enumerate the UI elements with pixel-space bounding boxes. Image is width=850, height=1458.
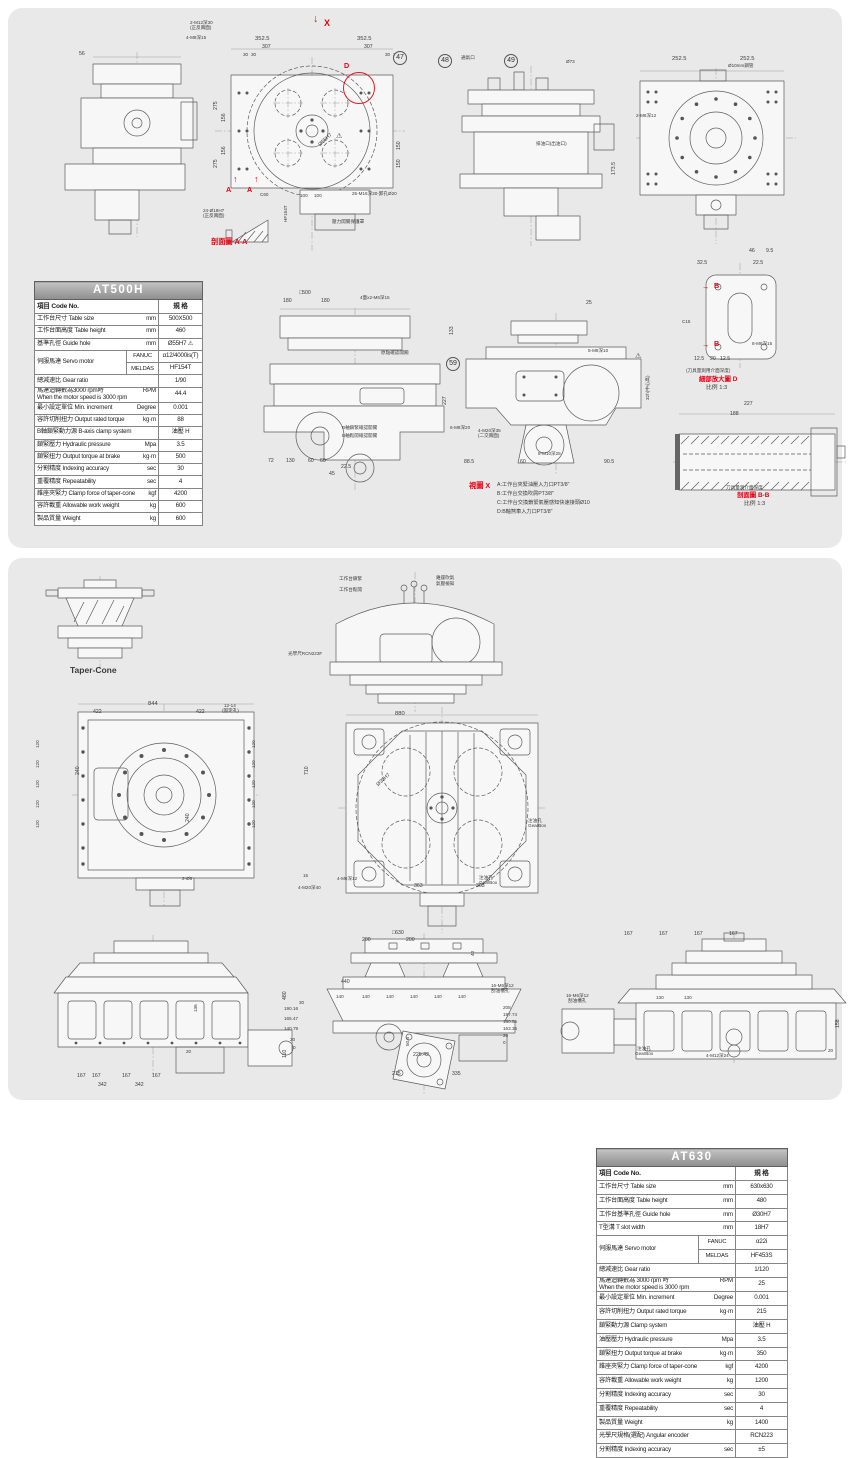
spec-label: 馬達迴轉數為3000 rpm時RPMWhen the motor speed i… [35,387,159,402]
spec-label: 光學尺規格(選配) Angular encoder [597,1430,736,1444]
table-header-row: 項目 Code No.規 格 [597,1167,788,1181]
spec-value: 4 [736,1402,788,1416]
spec-row: 分割精度 Indexing accuracysec±5 [597,1444,788,1458]
spec-row: 總減速比 Gear ratio1/120 [597,1263,788,1277]
motor-brand: FANUC [127,350,159,362]
spec-row: 工作台面高度 Table heightmm480 [597,1194,788,1208]
spec-label: 重覆精度 Repeatabilitysec [597,1402,736,1416]
motor-brand: MELDAS [127,363,159,375]
spec-row: 容許切削扭力 Output rated torquekg·m88 [35,414,203,426]
column-spec-header: 規 格 [159,300,203,314]
spec-label: 分割精度 Indexing accuracysec [597,1389,736,1403]
spec-row: 錐座夾緊力 Clamp force of taper-conekgf4200 [35,488,203,500]
spec-label: 鎖緊壓力 Hydraulic pressureMpa [35,439,159,451]
spec-row: 馬達迴轉數為 3000 rpm 時RPMWhen the motor speed… [597,1277,788,1292]
spec-row: 容許切削扭力 Output rated torquekg·m215 [597,1306,788,1320]
spec-label: 工作台基準孔徑 Guide holemm [597,1208,736,1222]
spec-value: 4 [159,476,203,488]
spec-label: 工作台面高度 Table heightmm [35,326,159,338]
table-title-row: AT630 [597,1149,788,1167]
spec-label: 馬達迴轉數為 3000 rpm 時RPMWhen the motor speed… [597,1277,736,1292]
spec-label: 鎖緊扭力 Output torque at brakekg·m [35,451,159,463]
drawing-side-elevation [456,313,681,478]
spec-row: 鎖緊扭力 Output torque at brakekg·m350 [597,1347,788,1361]
spec-label: 製品質量 Weightkg [35,513,159,525]
spec-value: 480 [736,1194,788,1208]
spec-row: 製品質量 Weightkg600 [35,513,203,525]
spec-label: 工作台尺寸 Table sizemm [35,314,159,326]
spec-row: T型溝 T slot widthmm18H7 [597,1222,788,1236]
spec-label: 總減速比 Gear ratio [597,1263,736,1277]
spec-label: 基準孔徑 Guide holemm [35,338,159,350]
spec-row: 伺服馬達 Servo motorFANUCα22i [597,1236,788,1250]
spec-value: 630x630 [736,1181,788,1195]
spec-row: 工作台尺寸 Table sizemm500X500 [35,314,203,326]
spec-label: 工作台尺寸 Table sizemm [597,1181,736,1195]
spec-label: 錐座夾緊力 Clamp force of taper-conekgf [597,1361,736,1375]
spec-value: α12/4000is(T) [159,350,203,362]
spec-value: 500 [159,451,203,463]
spec-value: HF154T [159,363,203,375]
drawing-front-elevation-center [303,933,553,1105]
spec-row: 重覆精度 Repeatabilitysec4 [35,476,203,488]
spec-row: 光學尺規格(選配) Angular encoderRCN223 [597,1430,788,1444]
spec-row: 容許載重 Allowable work weightkg600 [35,501,203,513]
spec-value: Ø55H7 ⚠ [159,338,203,350]
spec-row: 鎖緊動力源 Clamp system油壓 H [597,1320,788,1334]
bottom-panel-at630: AT630項目 Code No.規 格工作台尺寸 Table sizemm630… [8,558,842,1100]
spec-label: 製品質量 Weightkg [597,1416,736,1430]
spec-row: 鎖緊壓力 Hydraulic pressureMpa3.5 [35,439,203,451]
spec-value: 350 [736,1347,788,1361]
top-panel-at500h: AT500H項目 Code No.規 格工作台尺寸 Table sizemm50… [8,8,842,548]
spec-label: 工作台面高度 Table heightmm [597,1194,736,1208]
spec-row: 最小設定單位 Min. incrementDegree0.001 [35,402,203,414]
drawing-detail-d [686,253,816,371]
spec-row: 分割精度 Indexing accuracysec30 [597,1389,788,1403]
drawing-side-view-pallet [436,66,631,248]
spec-value: 25 [736,1277,788,1292]
spec-row: 基準孔徑 Guide holemmØ55H7 ⚠ [35,338,203,350]
spec-value: 4200 [736,1361,788,1375]
spec-row: 工作台面高度 Table heightmm460 [35,326,203,338]
spec-label: 伺服馬達 Servo motor [597,1236,699,1264]
drawing-side-elevation-right [556,933,850,1105]
spec-label: 最小設定單位 Min. incrementDegree [35,402,159,414]
spec-value: 215 [736,1306,788,1320]
spec-value: 0.001 [159,402,203,414]
spec-value: 1/120 [736,1263,788,1277]
motor-brand: MELDAS [699,1249,736,1263]
drawing-side-elevation-left [36,935,294,1103]
spec-label: T型溝 T slot widthmm [597,1222,736,1236]
spec-value: 油壓 H [736,1320,788,1334]
spec-row: 工作台尺寸 Table sizemm630x630 [597,1181,788,1195]
spec-row: 分割精度 Indexing accuracysec30 [35,464,203,476]
spec-value: 1/90 [159,375,203,387]
spec-row: 工作台基準孔徑 Guide holemmØ30H7 [597,1208,788,1222]
spec-value: 30 [736,1389,788,1403]
spec-row: 伺服馬達 Servo motorFANUCα12/4000is(T) [35,350,203,362]
column-item-header: 項目 Code No. [35,300,159,314]
spec-value: 1200 [736,1375,788,1389]
drawing-top-assembly [308,562,523,714]
spec-value: 0.001 [736,1292,788,1306]
spec-label: 容許切削扭力 Output rated torquekg·m [597,1306,736,1320]
spec-label: 容許載重 Allowable work weightkg [597,1375,736,1389]
drawing-bottom-view [636,68,850,248]
spec-row: 鎖緊扭力 Output torque at brakekg·m500 [35,451,203,463]
spec-value: 600 [159,501,203,513]
spec-value: 4200 [159,488,203,500]
spec-label: 重覆精度 Repeatabilitysec [35,476,159,488]
spec-row: 容許載重 Allowable work weightkg1200 [597,1375,788,1389]
spec-label: 總減速比 Gear ratio [35,375,159,387]
spec-label: 最小設定單位 Min. incrementDegree [597,1292,736,1306]
spec-label: 伺服馬達 Servo motor [35,350,127,375]
column-spec-header: 規 格 [736,1167,788,1181]
spec-label: 錐座夾緊力 Clamp force of taper-conekgf [35,488,159,500]
spec-label: 分割精度 Indexing accuracysec [35,464,159,476]
column-item-header: 項目 Code No. [597,1167,736,1181]
drawing-taper-cone [36,574,166,674]
spec-row: 製品質量 Weightkg1400 [597,1416,788,1430]
drawing-front-elevation [260,308,460,493]
spec-label: 容許載重 Allowable work weightkg [35,501,159,513]
spec-value: RCN223 [736,1430,788,1444]
spec-value: 88 [159,414,203,426]
drawing-base-plan [38,700,290,908]
at500h-spec-table: AT500H項目 Code No.規 格工作台尺寸 Table sizemm50… [34,281,203,526]
spec-row: 油壓壓力 Hydraulic pressureMpa3.5 [597,1333,788,1347]
spec-value: α22i [736,1236,788,1250]
spec-value: 44.4 [159,387,203,402]
spec-label: 容許切削扭力 Output rated torquekg·m [35,414,159,426]
spec-value: 1400 [736,1416,788,1430]
spec-value: 3.5 [736,1333,788,1347]
spec-value: 500X500 [159,314,203,326]
spec-label: 鎖緊扭力 Output torque at brakekg·m [597,1347,736,1361]
drawing-side-view-left [35,52,210,242]
spec-value: 油壓 H [159,427,203,439]
spec-value: ±5 [736,1444,788,1458]
spec-row: 最小設定單位 Min. incrementDegree0.001 [597,1292,788,1306]
spec-row: 馬達迴轉數為3000 rpm時RPMWhen the motor speed i… [35,387,203,402]
spec-value: 30 [159,464,203,476]
spec-label: B軸鎖緊動力源 B-axis clamp system [35,427,159,439]
drawing-section-aa-wedge [226,212,274,250]
spec-value: 600 [159,513,203,525]
spec-row: 重覆精度 Repeatabilitysec4 [597,1402,788,1416]
spec-value: 18H7 [736,1222,788,1236]
spec-value: 460 [159,326,203,338]
spec-row: 總減速比 Gear ratio1/90 [35,375,203,387]
spec-value: 3.5 [159,439,203,451]
catalog-page: { "colors": {"accent_red": "#e60012", "p… [0,0,850,1108]
at630-spec-table: AT630項目 Code No.規 格工作台尺寸 Table sizemm630… [596,1148,788,1458]
spec-row: 錐座夾緊力 Clamp force of taper-conekgf4200 [597,1361,788,1375]
spec-row: B軸鎖緊動力源 B-axis clamp system油壓 H [35,427,203,439]
spec-label: 鎖緊動力源 Clamp system [597,1320,736,1334]
drawing-section-bb [671,406,850,511]
spec-value: Ø30H7 [736,1208,788,1222]
spec-label: 分割精度 Indexing accuracysec [597,1444,736,1458]
table-title: AT630 [597,1149,788,1167]
spec-label: 油壓壓力 Hydraulic pressureMpa [597,1333,736,1347]
table-header-row: 項目 Code No.規 格 [35,300,203,314]
table-title-row: AT500H [35,282,203,300]
drawing-table-plan [308,703,570,935]
table-title: AT500H [35,282,203,300]
motor-brand: FANUC [699,1236,736,1250]
spec-value: HF453S [736,1249,788,1263]
